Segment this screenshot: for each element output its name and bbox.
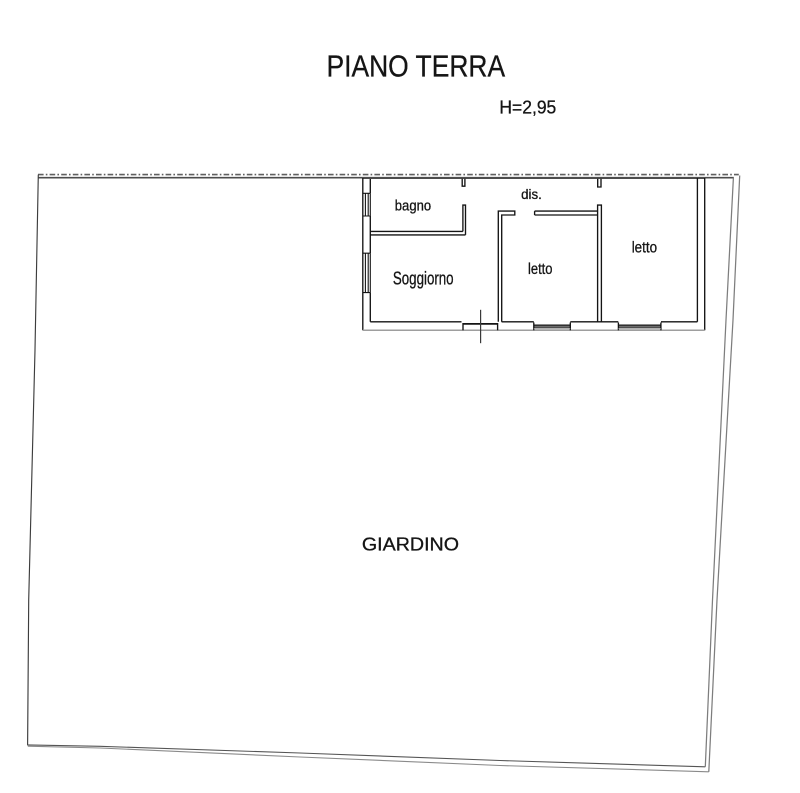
svg-text:letto: letto <box>528 261 553 278</box>
svg-text:H=2,95: H=2,95 <box>499 97 556 118</box>
svg-text:GIARDINO: GIARDINO <box>362 534 459 555</box>
svg-text:PIANO TERRA: PIANO TERRA <box>327 49 506 84</box>
svg-text:dis.: dis. <box>521 186 542 202</box>
svg-text:letto: letto <box>632 239 657 256</box>
svg-text:Soggiorno: Soggiorno <box>393 268 454 288</box>
svg-text:bagno: bagno <box>395 198 431 214</box>
